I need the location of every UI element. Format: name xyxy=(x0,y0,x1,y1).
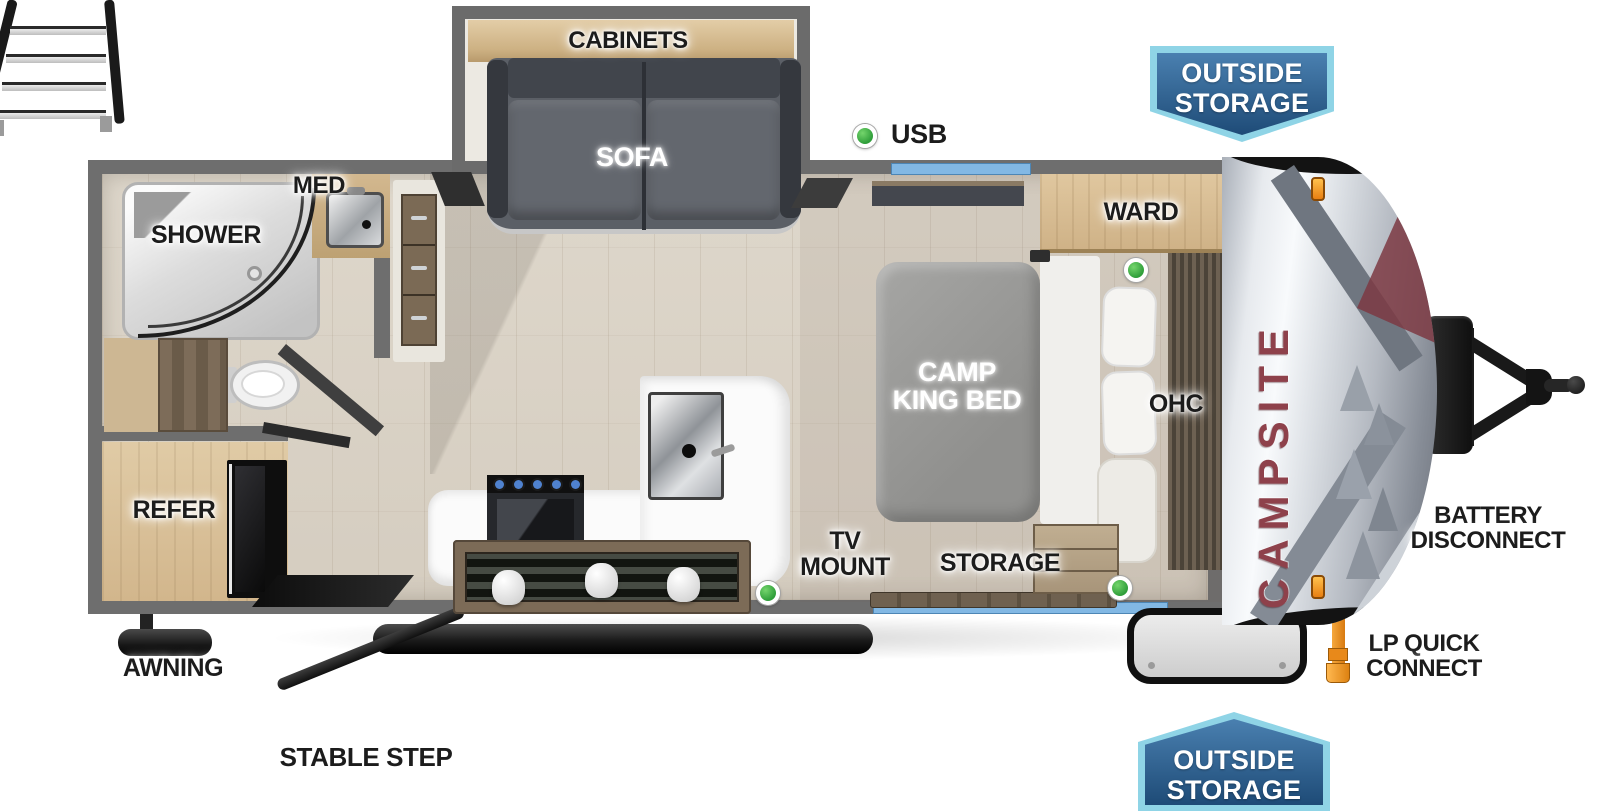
label-tv-line1: TV xyxy=(800,528,890,554)
stove-knob xyxy=(495,480,504,489)
drawer-divider xyxy=(403,294,435,296)
stable-step-unit xyxy=(0,0,132,132)
lp-fitting-end xyxy=(1326,663,1350,683)
label-battery-line2: DISCONNECT xyxy=(1411,529,1566,554)
fridge-door xyxy=(235,466,265,592)
indicator-dot xyxy=(1124,258,1148,282)
cap-top-rim xyxy=(1222,157,1437,179)
step-rail-right xyxy=(104,0,125,124)
toilet-seat xyxy=(241,370,285,398)
campsite-logo: CAMPSITE xyxy=(1250,227,1298,609)
bathroom-floor-strip xyxy=(104,338,158,432)
shower-drain xyxy=(247,266,262,281)
label-tv-line2: MOUNT xyxy=(800,554,890,580)
stool xyxy=(585,563,618,598)
label-cabinets: CABINETS xyxy=(568,27,687,55)
faucet xyxy=(347,187,365,195)
badge-line1: OUTSIDE xyxy=(1173,745,1294,775)
label-sofa: SOFA xyxy=(596,142,668,173)
stool xyxy=(492,570,525,605)
step-foot xyxy=(0,120,4,136)
stove-knob xyxy=(514,480,523,489)
label-lp-quick-connect: LP QUICK CONNECT xyxy=(1366,632,1482,682)
indicator-dot xyxy=(756,581,780,605)
label-ohc: OHC xyxy=(1149,390,1203,419)
awning-rear-tube xyxy=(118,629,212,656)
drawer-stack xyxy=(401,194,437,346)
drawer-handle xyxy=(411,316,427,320)
outside-storage-badge-bottom: OUTSIDE STORAGE xyxy=(1138,712,1330,811)
label-awning: AWNING xyxy=(123,654,223,683)
tree-graphic xyxy=(1368,487,1398,531)
marker-light-bottom xyxy=(1311,575,1325,599)
floorplan-stage: CAMPSITE CABINETS SOFA USB MED SHOWER WA… xyxy=(0,0,1600,811)
hitch-jack-knob xyxy=(1567,376,1585,394)
label-bed-line1: CAMP xyxy=(893,358,1022,386)
badge-line2: STORAGE xyxy=(1175,88,1309,118)
indicator-dot xyxy=(1108,576,1132,600)
label-storage: STORAGE xyxy=(940,549,1060,578)
window-top-bedroom xyxy=(891,163,1031,175)
step-tread xyxy=(0,110,106,119)
badge-text: OUTSIDE STORAGE xyxy=(1138,745,1330,805)
label-refer: REFER xyxy=(133,496,216,525)
stove-knob xyxy=(533,480,542,489)
label-bed-line2: KING BED xyxy=(893,386,1022,414)
label-battery-line1: BATTERY xyxy=(1411,504,1566,529)
label-camp-king-bed: CAMP KING BED xyxy=(893,358,1022,414)
kitchen-sink xyxy=(648,392,724,500)
stove-knob xyxy=(571,480,580,489)
bed-platform xyxy=(1040,256,1100,524)
fridge-edge xyxy=(229,464,232,594)
pillow xyxy=(1101,286,1158,368)
step-foot xyxy=(100,116,112,132)
label-med: MED xyxy=(293,172,345,200)
tree-graphic xyxy=(1346,531,1380,579)
label-shower: SHOWER xyxy=(151,221,261,250)
label-usb: USB xyxy=(891,119,947,150)
bathroom-sink xyxy=(326,192,384,248)
badge-line2: STORAGE xyxy=(1167,775,1301,805)
sofa-armrest xyxy=(487,60,508,218)
step-tread xyxy=(6,54,106,63)
awning-roller-tube xyxy=(373,624,873,654)
label-stable-step: STABLE STEP xyxy=(280,742,453,773)
drawer-handle xyxy=(411,216,427,220)
step-tread xyxy=(10,26,106,35)
step-tread xyxy=(2,82,106,91)
stove-knob xyxy=(552,480,561,489)
under-bed-storage-front xyxy=(870,592,1117,608)
wardrobe-handle xyxy=(1030,250,1050,262)
front-cap: CAMPSITE xyxy=(1222,157,1437,625)
badge-line1: OUTSIDE xyxy=(1181,58,1302,88)
marker-light-top xyxy=(1311,177,1325,201)
sink-drain xyxy=(682,444,696,458)
sink-drain xyxy=(362,220,371,229)
label-lp-line2: CONNECT xyxy=(1366,657,1482,682)
drawer-divider xyxy=(403,244,435,246)
drawer-handle xyxy=(411,266,427,270)
tv-mount-shelf xyxy=(872,181,1024,206)
label-battery-disconnect: BATTERY DISCONNECT xyxy=(1411,504,1566,554)
label-tv-mount: TV MOUNT xyxy=(800,528,890,580)
cargo-door-screw xyxy=(1148,662,1155,669)
linen-cabinet xyxy=(158,338,228,432)
lp-fitting xyxy=(1328,648,1348,661)
outside-storage-badge-top: OUTSIDE STORAGE xyxy=(1150,46,1334,142)
hall-drawer-chest xyxy=(393,180,445,362)
toilet xyxy=(230,360,300,410)
label-lp-line1: LP QUICK xyxy=(1366,632,1482,657)
tree-graphic xyxy=(1340,365,1374,411)
badge-text: OUTSIDE STORAGE xyxy=(1150,58,1334,118)
entry-door-mat xyxy=(252,575,414,607)
label-ward: WARD xyxy=(1104,198,1179,227)
stool xyxy=(667,567,700,602)
usb-indicator-dot xyxy=(853,124,877,148)
cargo-door-screw xyxy=(1279,662,1286,669)
